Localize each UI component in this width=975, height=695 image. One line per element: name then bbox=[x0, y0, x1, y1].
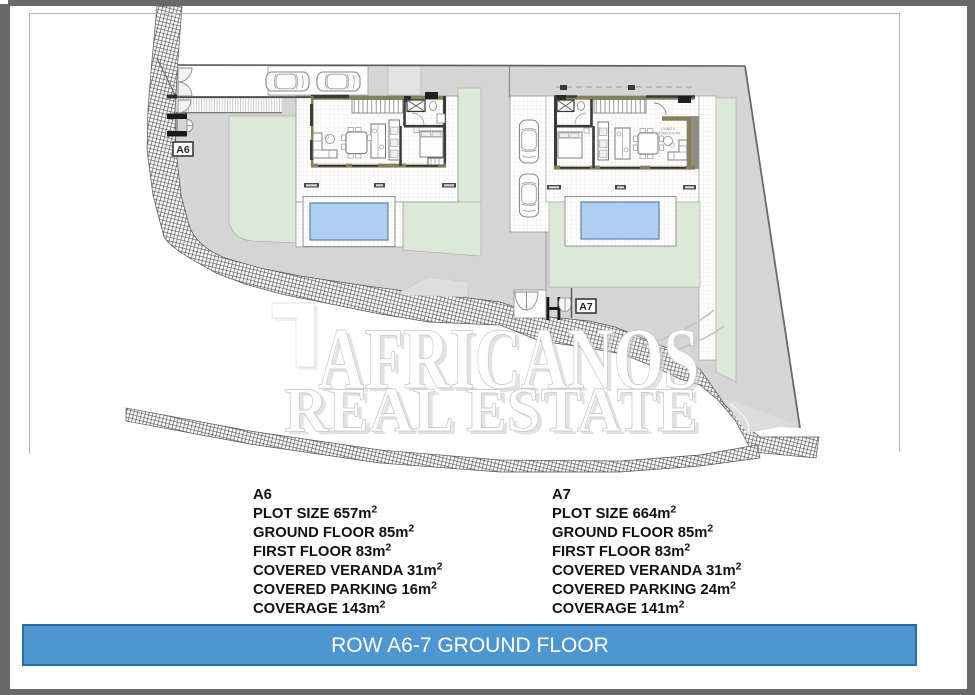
svg-text:LIVING &: LIVING & bbox=[661, 127, 676, 131]
svg-text:GROUND FLOOR 85m2: GROUND FLOOR 85m2 bbox=[253, 523, 414, 542]
svg-text:PLOT SIZE 657m2: PLOT SIZE 657m2 bbox=[253, 504, 377, 523]
svg-text:REAL ESTATE: REAL ESTATE bbox=[284, 374, 698, 445]
svg-text:COVERED PARKING 16m2: COVERED PARKING 16m2 bbox=[253, 580, 437, 599]
svg-text:COVERED VERANDA 31m2: COVERED VERANDA 31m2 bbox=[253, 561, 443, 580]
svg-text:COVERAGE 141m2: COVERAGE 141m2 bbox=[552, 599, 685, 618]
svg-text:DINING ROOM: DINING ROOM bbox=[656, 132, 680, 136]
svg-text:A7: A7 bbox=[552, 487, 571, 503]
svg-text:FIRST FLOOR 83m2: FIRST FLOOR 83m2 bbox=[552, 542, 690, 561]
svg-text:FIRST FLOOR 83m2: FIRST FLOOR 83m2 bbox=[253, 542, 391, 561]
svg-text:COVERAGE 143m2: COVERAGE 143m2 bbox=[253, 599, 386, 618]
svg-text:GROUND FLOOR 85m2: GROUND FLOOR 85m2 bbox=[552, 523, 713, 542]
svg-text:COVERED VERANDA 31m2: COVERED VERANDA 31m2 bbox=[552, 561, 742, 580]
svg-text:COVERED PARKING 24m2: COVERED PARKING 24m2 bbox=[552, 580, 736, 599]
svg-text:A6: A6 bbox=[176, 144, 190, 156]
svg-text:ROW A6-7 GROUND FLOOR: ROW A6-7 GROUND FLOOR bbox=[331, 634, 609, 657]
svg-text:A6: A6 bbox=[253, 487, 272, 503]
svg-text:PLOT SIZE 664m2: PLOT SIZE 664m2 bbox=[552, 504, 676, 523]
